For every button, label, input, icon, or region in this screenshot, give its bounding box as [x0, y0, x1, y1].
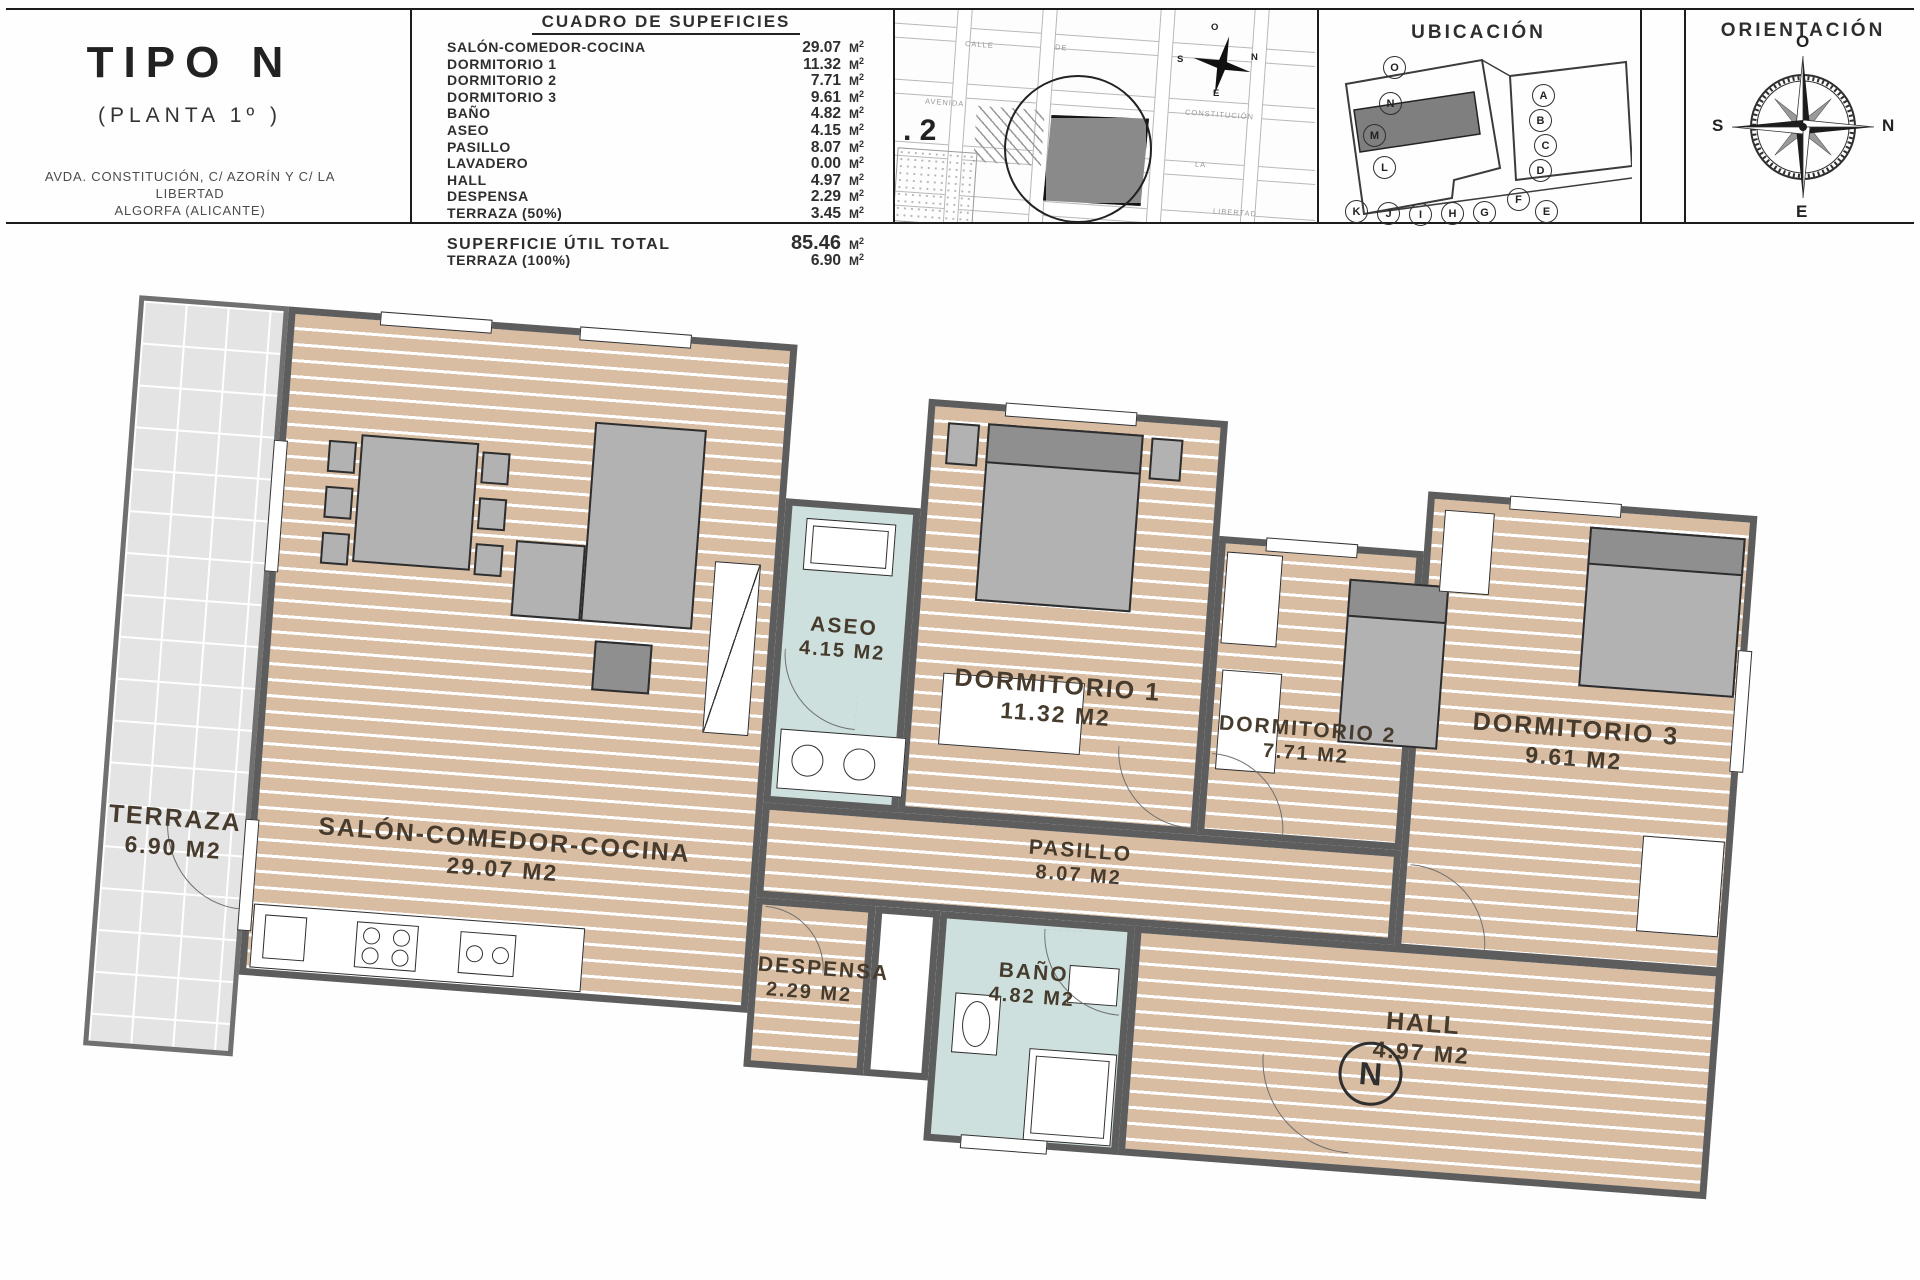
compass-s-label: S — [1177, 54, 1183, 65]
floor-plan: TERRAZA 6.90 M2 SALÓN-COMEDOR-COCINA 29.… — [72, 279, 1828, 1216]
table-row: ASEO4.15M2 — [447, 122, 885, 139]
room-label: SALÓN-COMEDOR-COCINA 29.07 M2 — [254, 808, 753, 902]
sofa — [580, 422, 707, 630]
unit-circle-a: A — [1532, 84, 1555, 107]
nightstand — [1148, 438, 1183, 482]
table-row: PASILLO8.07M2 — [447, 139, 885, 156]
unit-circle-i: I — [1409, 203, 1432, 226]
table-row: DORMITORIO 111.32M2 — [447, 56, 885, 73]
address-line-1: AVDA. CONSTITUCIÓN, C/ AZORÍN Y C/ LA LI… — [25, 168, 355, 202]
street-name: CALLE — [965, 39, 994, 50]
unit-circle-k: K — [1345, 200, 1368, 223]
title-block: TIPO N (PLANTA 1º ) AVDA. CONSTITUCIÓN, … — [25, 38, 355, 219]
compass-rose-icon — [1728, 52, 1878, 202]
room-label: HALL 4.97 M2 — [1133, 988, 1712, 1088]
bed-pillow — [1347, 579, 1450, 624]
table-row: LAVADERO0.00M2 — [447, 155, 885, 172]
coffee-table — [591, 640, 653, 694]
stove — [354, 921, 419, 972]
aseo-basin-counter — [776, 729, 906, 798]
address-line-2: ALGORFA (ALICANTE) — [25, 202, 355, 219]
total-row: TERRAZA (100%)6.90M2 — [447, 252, 885, 269]
unit-circle-g: G — [1473, 201, 1496, 224]
room-label: DORMITORIO 3 9.61 M2 — [1415, 703, 1734, 783]
plan-floor-subtitle: (PLANTA 1º ) — [25, 104, 355, 128]
dining-chair — [320, 532, 350, 566]
oven — [262, 914, 307, 961]
project-address: AVDA. CONSTITUCIÓN, C/ AZORÍN Y C/ LA LI… — [25, 168, 355, 219]
areas-table-totals: SUPERFICIE ÚTIL TOTAL85.46M2 TERRAZA (10… — [447, 232, 885, 269]
unit-circle-e: E — [1535, 200, 1558, 223]
rug — [1636, 835, 1725, 937]
closet — [1439, 510, 1495, 596]
unit-circle-j: J — [1377, 202, 1400, 225]
ubicacion-title: UBICACIÓN — [1317, 22, 1640, 44]
sofa-chaise — [510, 540, 586, 621]
areas-table: CUADRO DE SUPEFICIES SALÓN-COMEDOR-COCIN… — [447, 12, 885, 268]
site-map: CALLE DE AVENIDA LA CONSTITUCIÓN LIBERTA… — [895, 10, 1315, 222]
table-row: SALÓN-COMEDOR-COCINA29.07M2 — [447, 39, 885, 56]
unit-circle-c: C — [1534, 134, 1557, 157]
table-row: BAÑO4.82M2 — [447, 105, 885, 122]
unit-circle-o: O — [1383, 56, 1406, 79]
table-row: DORMITORIO 27.71M2 — [447, 72, 885, 89]
dining-table — [352, 434, 479, 570]
rose-o-label: O — [1796, 32, 1809, 52]
header-bottom-rule — [6, 222, 1914, 224]
nightstand — [945, 422, 980, 466]
areas-table-title: CUADRO DE SUPEFICIES — [447, 12, 885, 32]
plan-type-title: TIPO N — [25, 38, 355, 88]
street-name: DE — [1055, 43, 1068, 53]
map-plot-label: . 2 — [903, 114, 936, 148]
dining-chair — [327, 440, 357, 474]
dining-chair — [473, 543, 503, 577]
compass-n-label: N — [1251, 52, 1258, 63]
table-row: DORMITORIO 39.61M2 — [447, 89, 885, 106]
compass-o-label: O — [1211, 22, 1218, 33]
header-divider — [410, 8, 412, 224]
closet — [1220, 552, 1283, 648]
room-label: TERRAZA 6.90 M2 — [102, 799, 246, 866]
aseo-cabinet — [803, 518, 897, 577]
orientacion-panel: ORIENTACIÓN O N E S — [1686, 8, 1920, 222]
street-name: AVENIDA — [925, 97, 965, 109]
unit-circle-f: F — [1507, 188, 1530, 211]
room-label: ASEO 4.15 M2 — [781, 610, 905, 667]
unit-circle-m: M — [1363, 124, 1386, 147]
shower — [1023, 1048, 1118, 1146]
unit-circle-l: L — [1373, 156, 1396, 179]
map-compass-icon: O N E S — [1183, 26, 1261, 104]
areas-table-rows: SALÓN-COMEDOR-COCINA29.07M2 DORMITORIO 1… — [447, 39, 885, 222]
table-row: HALL4.97M2 — [447, 172, 885, 189]
room-label: DESPENSA 2.29 M2 — [755, 953, 864, 1009]
compass-star-icon — [1191, 34, 1253, 96]
unit-circle-d: D — [1529, 159, 1552, 182]
header-divider — [1640, 8, 1642, 224]
street-name: LA — [1195, 160, 1207, 170]
rose-s-label: S — [1712, 116, 1723, 136]
rose-e-label: E — [1796, 202, 1807, 222]
unit-circle-h: H — [1441, 202, 1464, 225]
map-highlight-circle — [1004, 75, 1152, 222]
dining-chair — [480, 451, 510, 485]
room-hall: HALL 4.97 M2 — [1118, 926, 1724, 1200]
unit-circle-b: B — [1529, 109, 1552, 132]
floorplan-sheet: TIPO N (PLANTA 1º ) AVDA. CONSTITUCIÓN, … — [0, 0, 1920, 1280]
table-row: TERRAZA (50%)3.45M2 — [447, 205, 885, 222]
table-row: DESPENSA2.29M2 — [447, 188, 885, 205]
dining-chair — [477, 497, 507, 531]
compass-e-label: E — [1213, 88, 1219, 99]
dining-chair — [323, 486, 353, 520]
total-row: SUPERFICIE ÚTIL TOTAL85.46M2 — [447, 232, 885, 252]
rose-n-label: N — [1882, 116, 1894, 136]
unit-circle-n: N — [1379, 92, 1402, 115]
map-dotted-area — [895, 147, 977, 222]
ubicacion-panel: UBICACIÓN O N M L A B C D F E K J I H G — [1317, 8, 1640, 222]
kitchen-sink — [458, 931, 517, 977]
